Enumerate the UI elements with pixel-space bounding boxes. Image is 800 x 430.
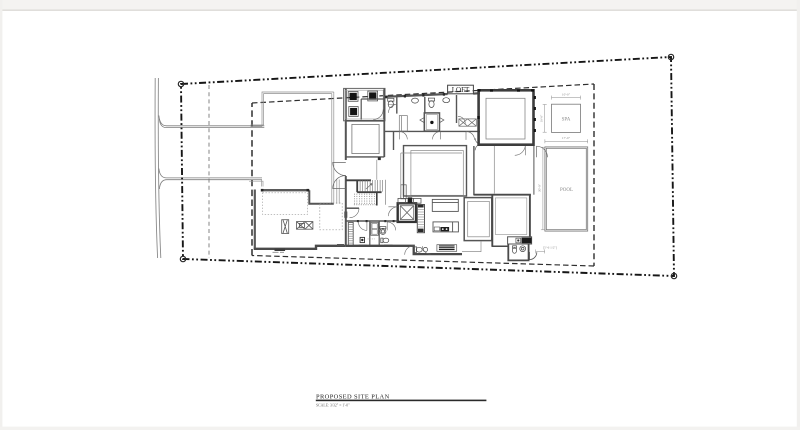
svg-text:17'-0": 17'-0" bbox=[562, 136, 571, 140]
svg-text:10'-0": 10'-0" bbox=[540, 114, 544, 122]
svg-text:10'-0": 10'-0" bbox=[562, 92, 571, 96]
svg-text:SCALE: 3/32" = 1'-0": SCALE: 3/32" = 1'-0" bbox=[316, 403, 350, 407]
svg-text:LOFT: LOFT bbox=[452, 86, 470, 94]
svg-text:PROPOSED SITE PLAN: PROPOSED SITE PLAN bbox=[316, 393, 390, 400]
svg-text:POOL: POOL bbox=[560, 188, 573, 193]
svg-text:30'-0": 30'-0" bbox=[538, 183, 542, 192]
svg-text:SPA: SPA bbox=[562, 118, 571, 123]
svg-text:[5'-6 1/2"]: [5'-6 1/2"] bbox=[543, 245, 557, 249]
